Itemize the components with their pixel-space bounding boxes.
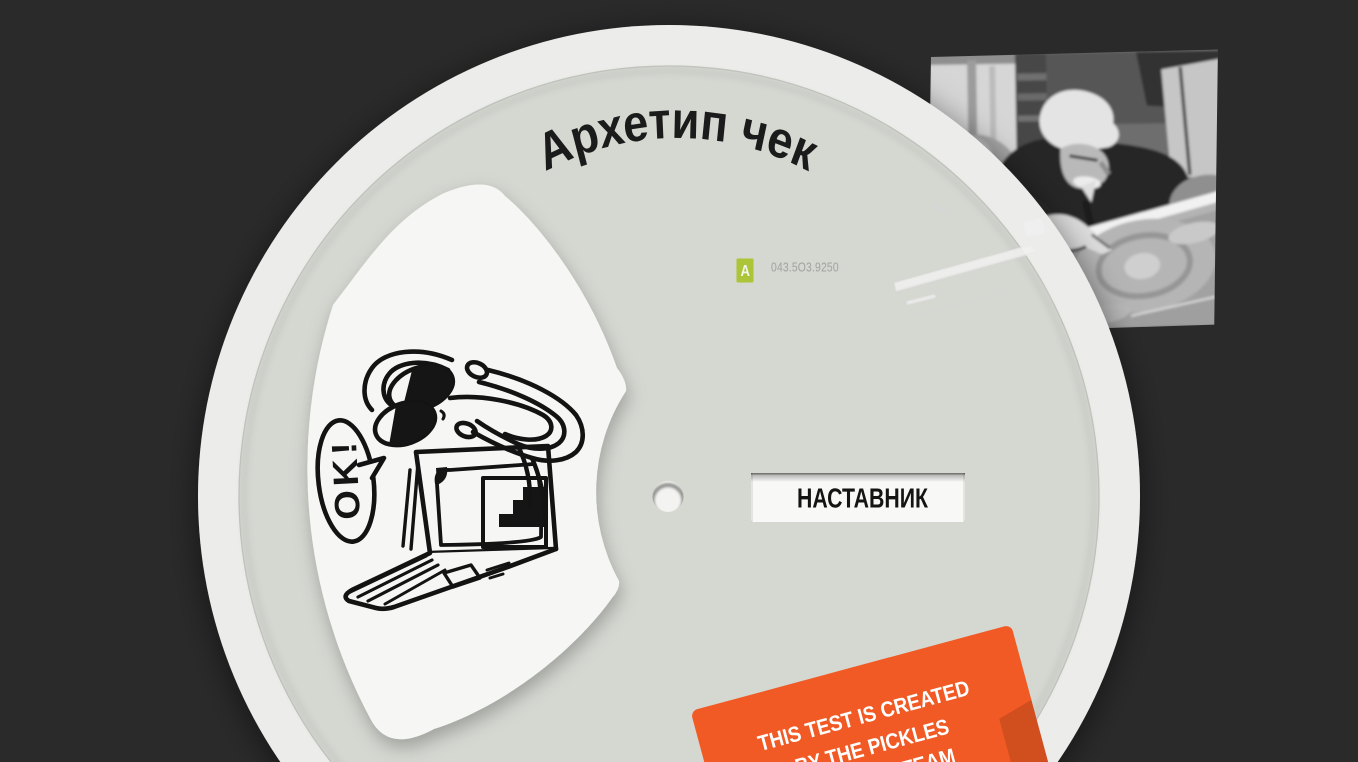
svg-text:НАСТАВНИК: НАСТАВНИК — [797, 483, 929, 515]
svg-text:043.5O3.9250: 043.5O3.9250 — [771, 260, 839, 274]
svg-text:OK!: OK! — [324, 437, 368, 521]
svg-text:A: A — [740, 263, 750, 280]
